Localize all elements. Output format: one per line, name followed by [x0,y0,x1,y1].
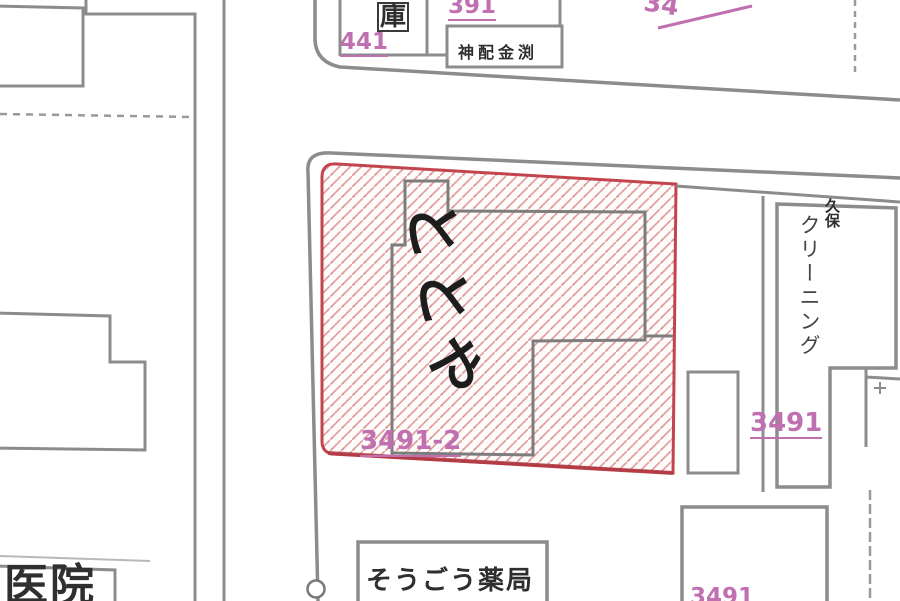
cleaning-shop-label: クリーニング [798,214,819,358]
parcel-number-3491-2: 3491-2 [360,428,461,457]
boundary-marker-cross [874,382,886,394]
block-boundary-left [86,0,195,601]
building-midleft-outline [0,313,145,450]
parcel-number-3491: 3491 [750,410,822,439]
small-building-outline [688,372,738,473]
company-name-label: 神配金渕 [458,45,538,61]
garage-label: 庫 [377,2,409,32]
utility-pole-icon [308,581,325,598]
pharmacy-label: そうごう薬局 [366,568,534,594]
map-canvas[interactable]: 庫 441 391 神配金渕 34 ととや 3491-2 3491 久保 クリー… [0,0,900,601]
cleaning-shop-name-prefix: 久保 [824,198,839,228]
parcel-number-partial-topright: 34 [642,0,680,20]
parcel-number-441: 441 [340,31,388,57]
building-topleft-outline [0,6,83,86]
clinic-label: 医院 [4,564,96,601]
parcel-number-partial-bottomright: 3491 [690,586,754,601]
parcel-corner-lines-right [866,368,900,447]
dashed-boundary-left [0,114,193,117]
right-block-top-edge [676,186,900,202]
parcel-number-391: 391 [448,0,496,21]
cleaning-building-outline [777,204,896,487]
